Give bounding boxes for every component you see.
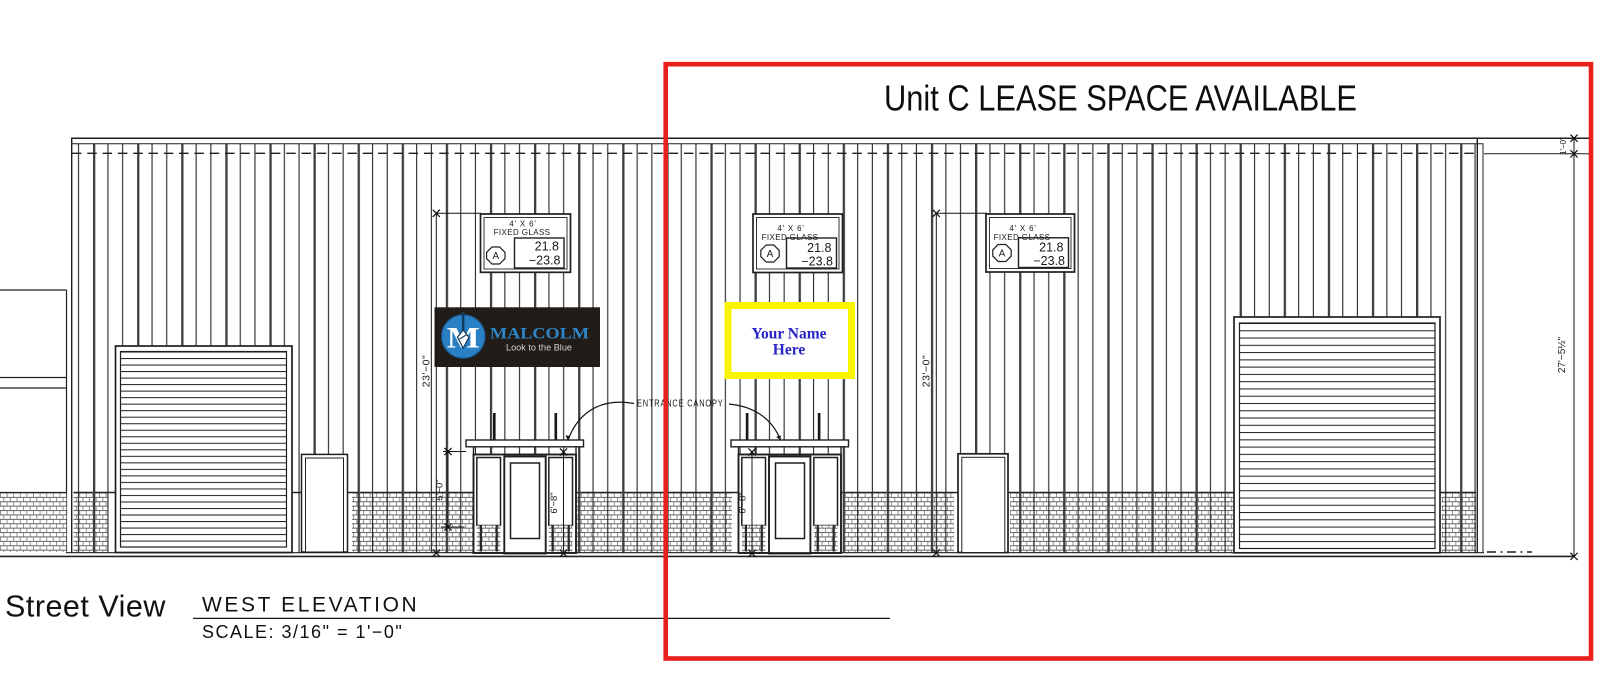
svg-text:27'−5½": 27'−5½"	[1557, 336, 1568, 373]
svg-text:21.8: 21.8	[1039, 241, 1063, 255]
svg-text:ENTRANCE CANOPY: ENTRANCE CANOPY	[637, 399, 724, 410]
svg-text:23'−0": 23'−0"	[921, 355, 933, 387]
svg-text:Here: Here	[773, 342, 806, 359]
svg-text:Street View: Street View	[5, 590, 166, 624]
svg-text:1'−0": 1'−0"	[1559, 137, 1568, 155]
svg-text:−23.8: −23.8	[801, 255, 833, 269]
svg-text:5'−0": 5'−0"	[435, 479, 446, 500]
svg-text:23'−0": 23'−0"	[421, 355, 433, 387]
svg-text:4' X 6': 4' X 6'	[1009, 224, 1036, 233]
svg-text:Your Name: Your Name	[751, 326, 826, 343]
svg-text:−23.8: −23.8	[1033, 254, 1065, 268]
svg-text:21.8: 21.8	[807, 241, 831, 255]
svg-text:Look to the Blue: Look to the Blue	[506, 343, 572, 354]
svg-text:A: A	[999, 249, 1006, 260]
svg-text:6'−8": 6'−8"	[549, 492, 560, 513]
svg-text:SCALE: 3/16" = 1'−0": SCALE: 3/16" = 1'−0"	[202, 622, 403, 642]
svg-text:−23.8: −23.8	[529, 254, 561, 268]
svg-text:WEST ELEVATION: WEST ELEVATION	[202, 594, 419, 617]
svg-text:4' X 6': 4' X 6'	[777, 224, 804, 233]
svg-text:A: A	[767, 249, 774, 260]
svg-text:FIXED GLASS: FIXED GLASS	[494, 228, 551, 237]
svg-text:6'−8": 6'−8"	[738, 492, 749, 513]
svg-text:MALCOLM: MALCOLM	[490, 326, 589, 343]
svg-text:21.8: 21.8	[535, 240, 559, 254]
svg-text:Unit C LEASE SPACE AVAILABLE: Unit C LEASE SPACE AVAILABLE	[884, 78, 1357, 119]
svg-text:A: A	[492, 251, 499, 262]
